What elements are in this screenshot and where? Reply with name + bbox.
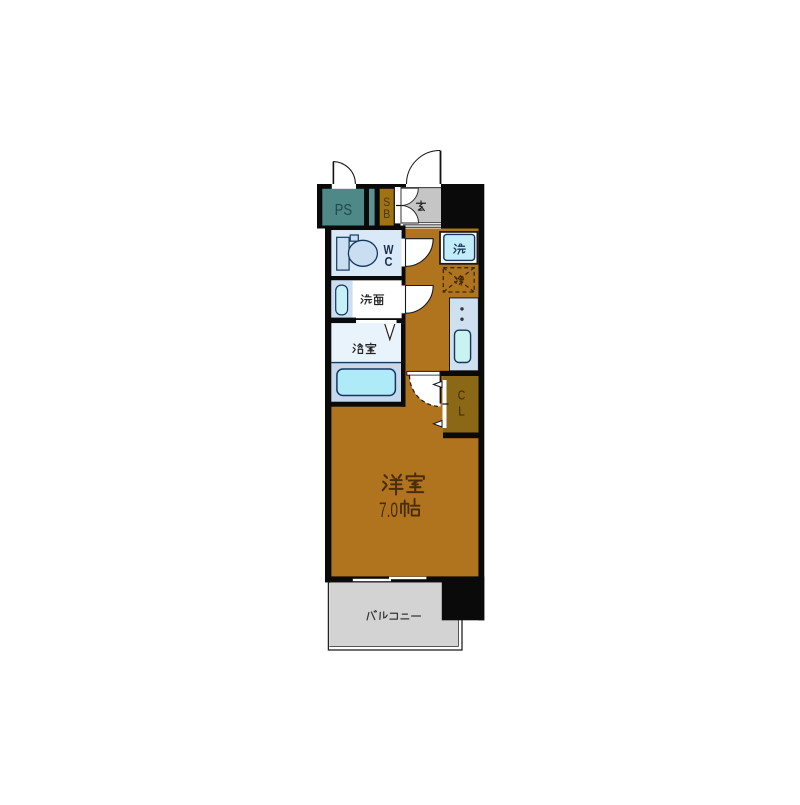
svg-text:C: C	[458, 389, 466, 403]
svg-text:PS: PS	[335, 202, 353, 219]
svg-text:L: L	[458, 405, 465, 419]
svg-text:7.0: 7.0	[379, 498, 398, 522]
svg-text:C: C	[385, 254, 394, 269]
svg-text:B: B	[383, 207, 390, 221]
